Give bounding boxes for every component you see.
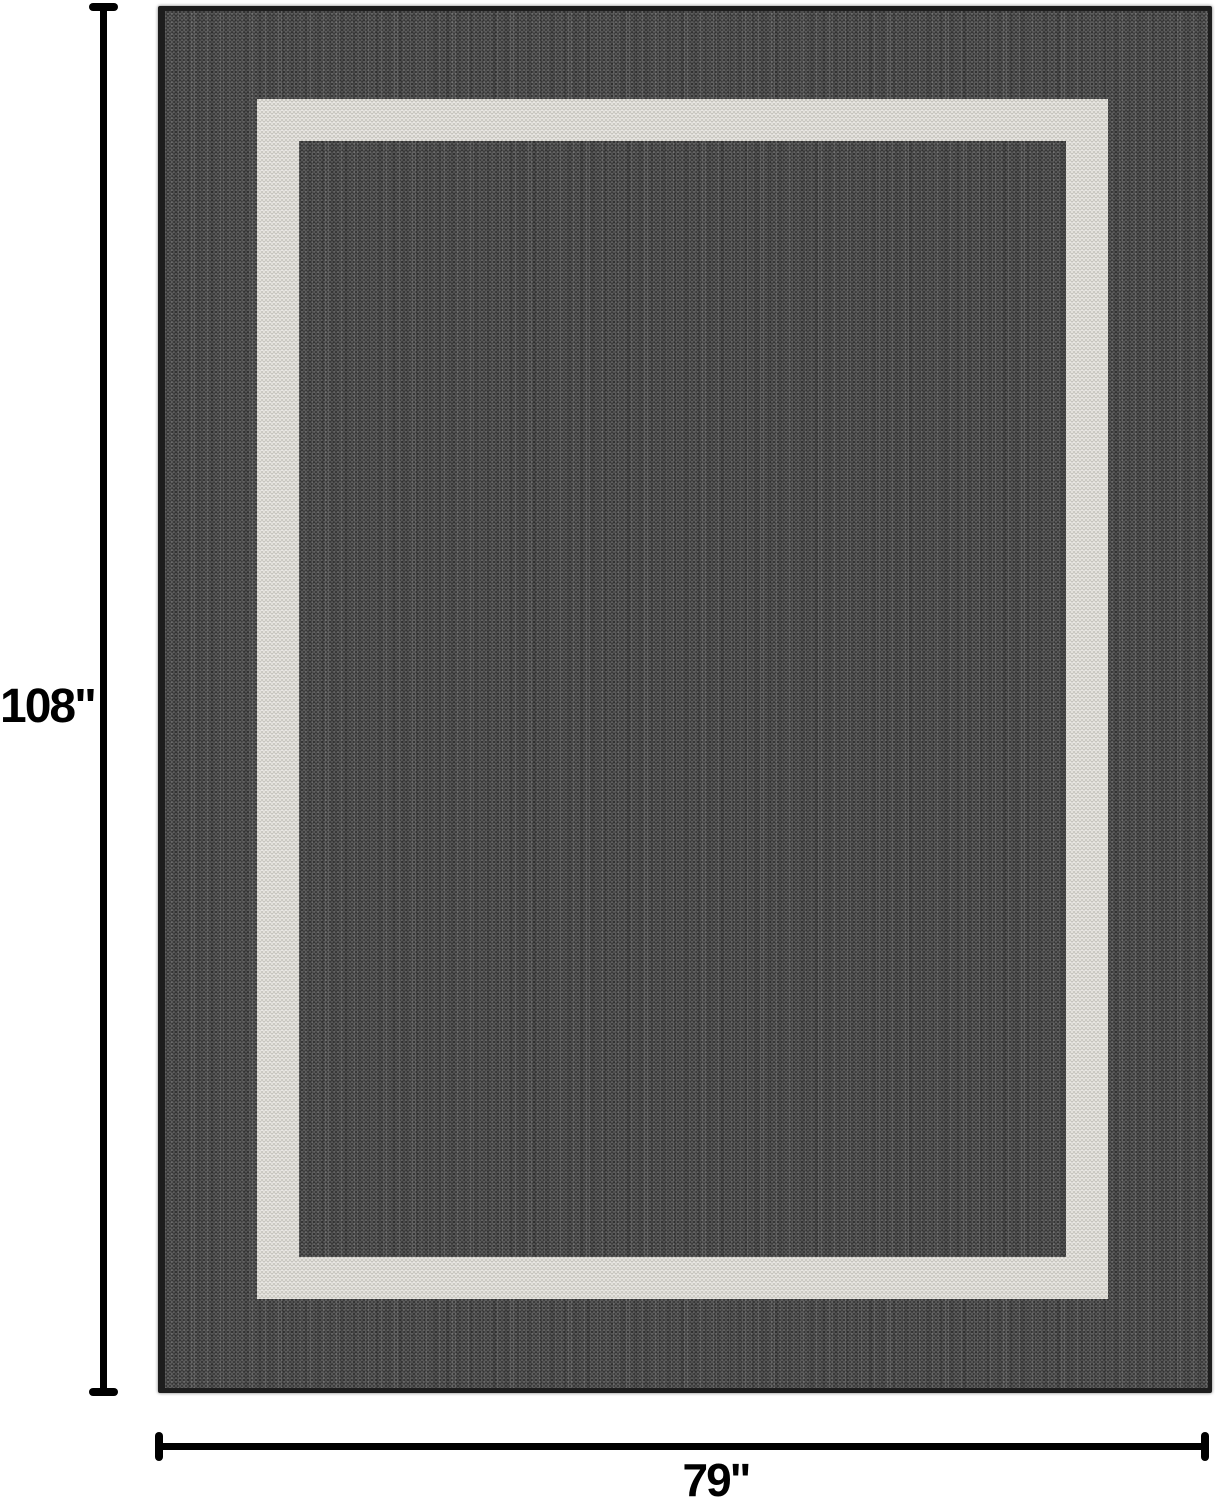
rug-inner-field <box>299 141 1066 1257</box>
height-dimension-endcap-top-icon <box>89 3 118 11</box>
product-dimension-diagram: 108" 79" <box>0 0 1215 1500</box>
width-dimension-endcap-right-icon <box>1201 1432 1209 1461</box>
rug-photo <box>158 6 1212 1393</box>
height-dimension-line <box>100 6 107 1394</box>
width-dimension-endcap-left-icon <box>155 1432 163 1461</box>
width-dimension-label: 79" <box>566 1457 866 1500</box>
height-dimension-label: 108" <box>0 683 94 731</box>
rug-border-stripe <box>257 99 1108 1299</box>
height-dimension-endcap-bottom-icon <box>89 1388 118 1396</box>
width-dimension-line <box>158 1443 1208 1450</box>
